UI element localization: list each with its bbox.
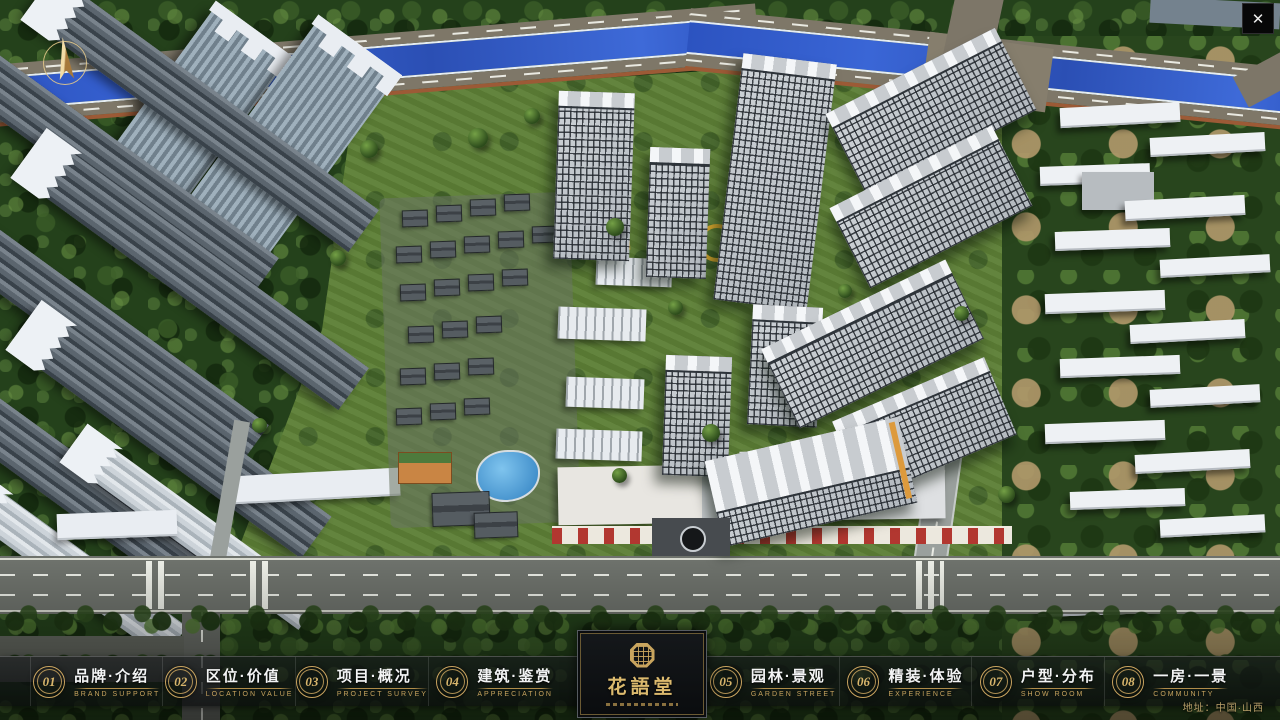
east-slab: [1045, 290, 1166, 314]
courtyard-house: [430, 403, 457, 421]
courtyard-house: [434, 279, 461, 297]
nav-sublabel: COMMUNITY: [1153, 691, 1228, 698]
nav-number: 02: [174, 674, 187, 690]
nav-number: 01: [43, 674, 56, 690]
nav-item-interior-experience[interactable]: 06 精装·体验EXPERIENCE: [839, 657, 971, 706]
courtyard-house: [464, 398, 491, 416]
entrance-plaza: [652, 518, 730, 556]
nav-number-badge: 04: [436, 666, 468, 698]
nav-divider: [888, 688, 963, 689]
nav-divider: [337, 688, 428, 689]
logo-subtext: [606, 703, 678, 706]
nav-item-brand-intro[interactable]: 01 品牌·介绍BRAND SUPPORT: [30, 657, 162, 706]
courtyard-house: [468, 358, 495, 376]
project-address: 地址：中国·山西: [1183, 699, 1264, 714]
courtyard-house: [442, 321, 469, 339]
close-button[interactable]: ✕: [1242, 3, 1274, 34]
building-lowrise: [57, 510, 178, 540]
nav-label: 项目·概况: [337, 665, 428, 686]
courtyard-house: [408, 326, 435, 344]
tree: [998, 486, 1015, 503]
courtyard-house: [396, 246, 423, 264]
midrise-building: [556, 429, 643, 462]
nav-item-location-value[interactable]: 02 区位·价值LOCATION VALUE: [162, 657, 294, 706]
midrise-building: [566, 377, 645, 410]
courtyard-house: [498, 231, 525, 249]
nav-label: 户型·分布: [1021, 665, 1096, 686]
tower: [646, 147, 711, 279]
nav-item-floorplan-distribution[interactable]: 07 户型·分布SHOW ROOM: [971, 657, 1103, 706]
nav-divider: [1021, 688, 1096, 689]
courtyard-house: [470, 199, 497, 217]
nav-sublabel: SHOW ROOM: [1021, 691, 1096, 698]
tree: [954, 306, 969, 321]
courtyard-house: [402, 210, 429, 228]
nav-label: 建筑·鉴赏: [477, 665, 553, 686]
tree: [330, 250, 346, 266]
crosswalk: [250, 561, 274, 609]
nav-number: 07: [989, 674, 1002, 690]
nav-item-garden-landscape[interactable]: 05 园林·景观GARDEN STREET: [706, 657, 838, 706]
nav-number: 05: [719, 674, 732, 690]
nav-number: 08: [1122, 674, 1135, 690]
nav-divider: [206, 688, 294, 689]
nav-number-badge: 06: [847, 666, 879, 698]
courtyard-house: [468, 274, 495, 292]
tree: [606, 218, 624, 236]
tree: [668, 300, 683, 315]
nav-sublabel: PROJECT SURVEY: [337, 691, 428, 698]
nav-item-project-survey[interactable]: 03 项目·概况PROJECT SURVEY: [295, 657, 428, 706]
compass-icon[interactable]: [36, 34, 94, 92]
aerial-map[interactable]: [0, 0, 1280, 720]
project-logo-plaque: 花語堂: [577, 630, 707, 718]
nav-lead-spacer: [0, 657, 30, 706]
nav-number-badge: 02: [165, 666, 197, 698]
nav-number: 06: [857, 674, 870, 690]
courtyard-house: [400, 368, 427, 386]
nav-label: 一房·一景: [1153, 665, 1228, 686]
courtyard-house: [396, 408, 423, 426]
courtyard-house: [464, 236, 491, 254]
nav-sublabel: LOCATION VALUE: [206, 691, 294, 698]
nav-divider: [477, 688, 553, 689]
tree: [468, 128, 488, 148]
nav-sublabel: EXPERIENCE: [888, 691, 963, 698]
nav-number: 03: [305, 674, 318, 690]
tree: [360, 140, 378, 158]
courtyard-house: [434, 363, 461, 381]
courtyard-house: [502, 269, 529, 287]
tree: [612, 468, 627, 483]
nav-number-badge: 01: [33, 666, 65, 698]
nav-item-architecture[interactable]: 04 建筑·鉴赏APPRECIATION: [428, 657, 560, 706]
nav-number: 04: [446, 674, 459, 690]
nav-sublabel: GARDEN STREET: [751, 691, 837, 698]
crosswalk: [916, 561, 944, 609]
courtyard-house: [436, 205, 463, 223]
nav-divider: [74, 688, 160, 689]
courtyard-house: [430, 241, 457, 259]
nav-label: 精装·体验: [888, 665, 963, 686]
nav-number-badge: 05: [710, 666, 742, 698]
nav-label: 区位·价值: [206, 665, 294, 686]
project-name: 花語堂: [607, 672, 676, 699]
crosswalk: [146, 561, 170, 609]
nav-divider: [1153, 688, 1228, 689]
tree: [252, 418, 267, 433]
east-slab: [1045, 420, 1166, 444]
nav-divider: [751, 688, 837, 689]
midrise-building: [557, 306, 646, 341]
amenity-building: [398, 452, 452, 484]
clubhouse: [474, 511, 519, 539]
tree: [838, 284, 852, 298]
nav-number-badge: 07: [980, 666, 1012, 698]
presentation-viewport: ✕ 01 品牌·介绍BRAND SUPPORT 02 区位·价值LOCATION…: [0, 0, 1280, 720]
close-icon: ✕: [1252, 10, 1265, 28]
nav-sublabel: BRAND SUPPORT: [74, 691, 160, 698]
tree: [702, 424, 720, 442]
tree: [524, 108, 540, 124]
tower: [553, 91, 635, 262]
seal-icon: [630, 643, 655, 668]
nav-label: 品牌·介绍: [74, 665, 160, 686]
entrance-roundabout: [680, 526, 706, 552]
courtyard-house: [476, 316, 503, 334]
nav-number-badge: 08: [1112, 666, 1144, 698]
nav-sublabel: APPRECIATION: [477, 691, 553, 698]
courtyard-house: [400, 284, 427, 302]
nav-label: 园林·景观: [751, 665, 837, 686]
nav-number-badge: 03: [296, 666, 328, 698]
east-slab: [1055, 228, 1171, 251]
courtyard-house: [504, 194, 531, 212]
